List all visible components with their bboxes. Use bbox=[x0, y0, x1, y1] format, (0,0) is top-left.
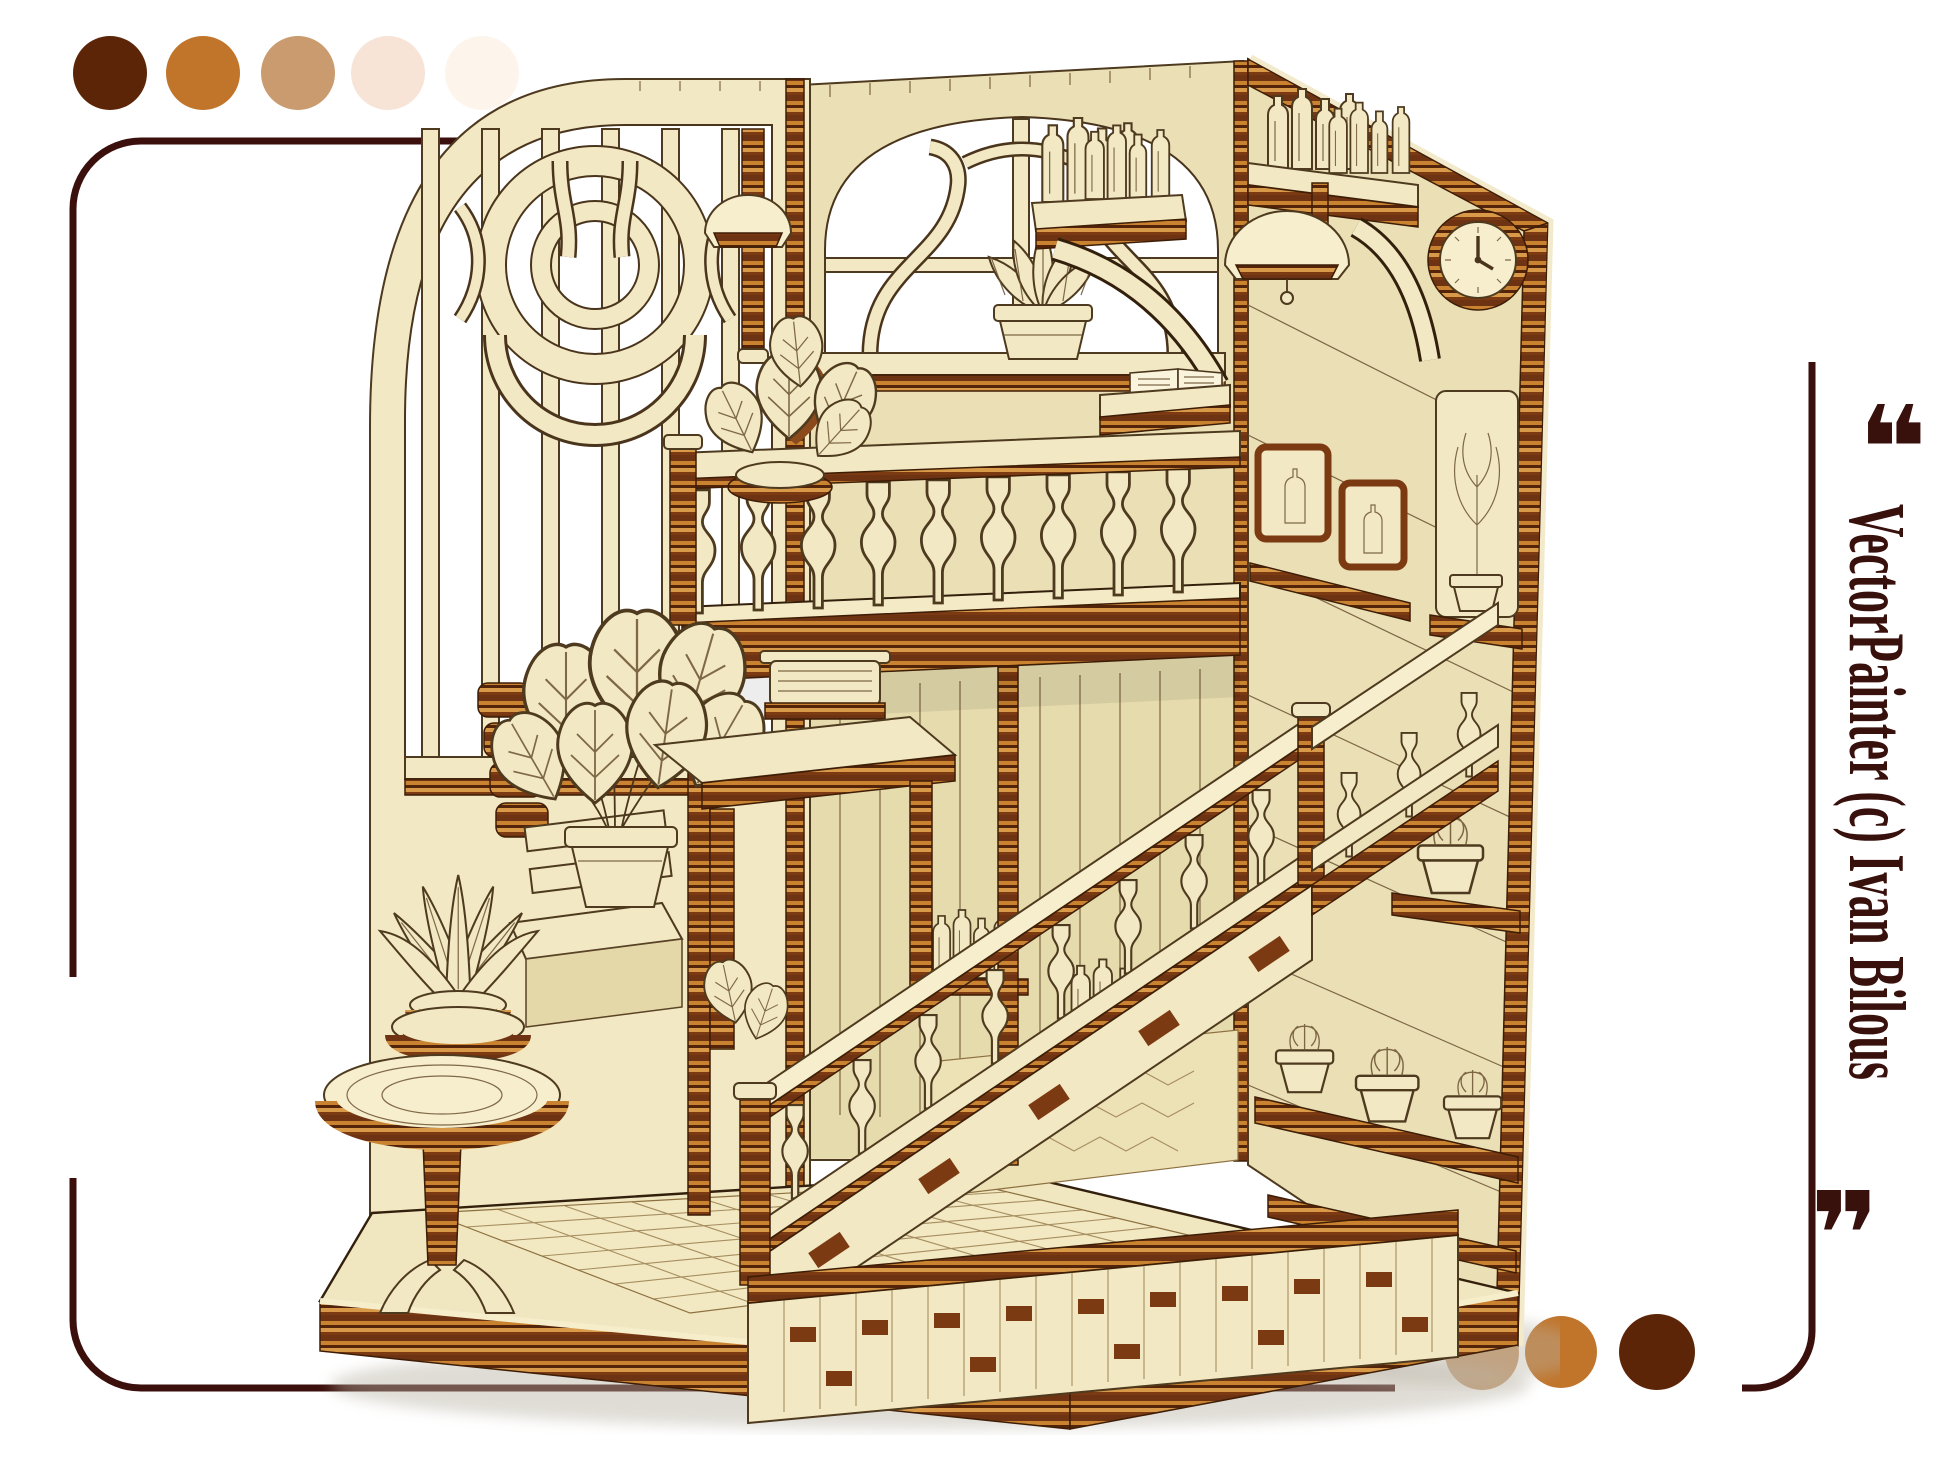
open-quote-mark: ❝ bbox=[1858, 390, 1927, 508]
book-nook-illustration bbox=[310, 55, 1560, 1435]
frame-right bbox=[1742, 362, 1812, 1388]
palette-swatch-1 bbox=[73, 36, 147, 110]
close-quote-mark: ❞ bbox=[1810, 1176, 1879, 1294]
floral-panel bbox=[1430, 391, 1522, 649]
page: { "branding": { "open_quote": "❝", "auth… bbox=[0, 0, 1946, 1460]
author-credit: VectorPainter (c) Ivan Bilous bbox=[1830, 504, 1921, 1080]
wall-clock bbox=[1428, 210, 1528, 310]
palette-swatch-8 bbox=[1619, 1314, 1695, 1390]
palette-swatch-2 bbox=[166, 36, 240, 110]
